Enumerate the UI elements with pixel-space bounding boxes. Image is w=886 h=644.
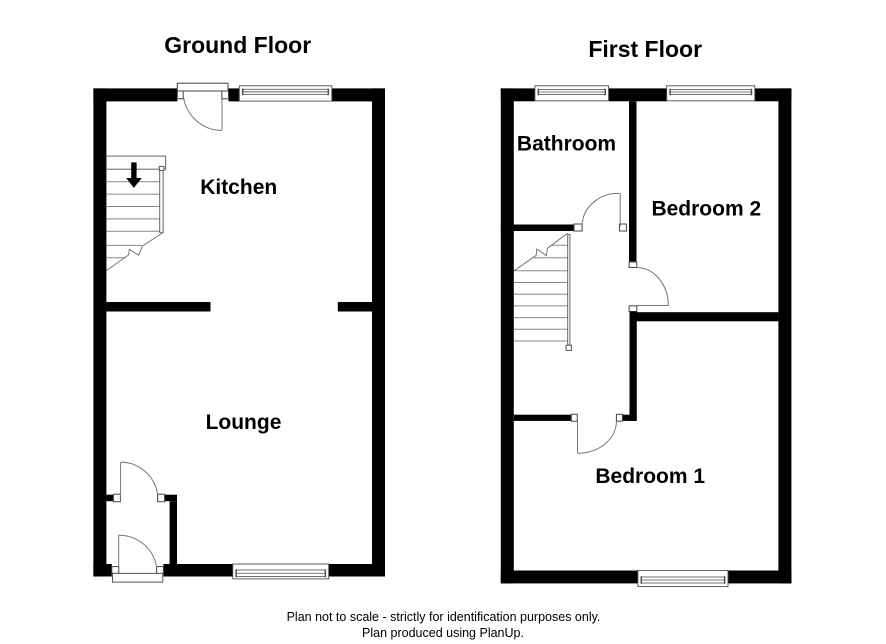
svg-text:Plan not to scale - strictly f: Plan not to scale - strictly for identif… bbox=[287, 610, 601, 624]
svg-text:First Floor: First Floor bbox=[588, 36, 702, 62]
svg-text:Bathroom: Bathroom bbox=[517, 133, 616, 156]
svg-text:Kitchen: Kitchen bbox=[200, 176, 277, 199]
svg-text:Bedroom 2: Bedroom 2 bbox=[651, 198, 761, 221]
svg-text:Ground Floor: Ground Floor bbox=[164, 32, 311, 58]
svg-text:Bedroom 1: Bedroom 1 bbox=[595, 465, 705, 488]
svg-text:Lounge: Lounge bbox=[206, 411, 282, 434]
svg-text:Plan produced using PlanUp.: Plan produced using PlanUp. bbox=[362, 626, 524, 640]
